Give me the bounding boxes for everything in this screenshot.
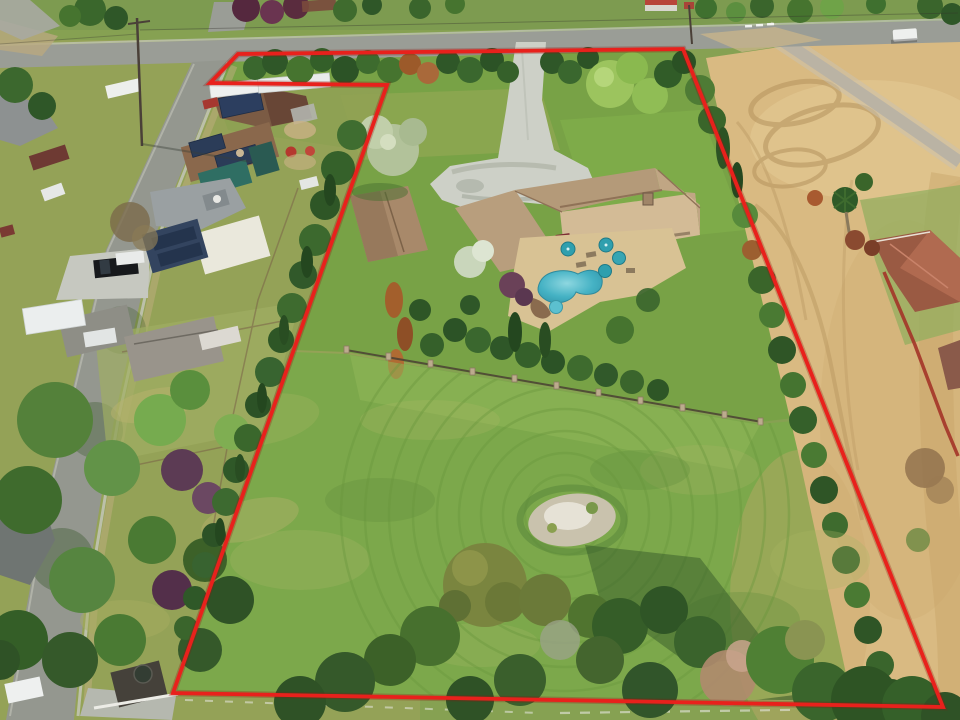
red-bush — [845, 230, 865, 250]
chimney — [643, 193, 653, 205]
roof-cupola — [213, 195, 221, 203]
cypress — [235, 454, 245, 482]
cypress — [301, 246, 313, 278]
spa — [550, 301, 563, 314]
rust-conifer — [397, 317, 413, 351]
rust-tree — [417, 62, 439, 84]
red-patio-umbrella — [305, 146, 315, 156]
rust-bush — [807, 190, 823, 206]
cypress — [539, 322, 551, 358]
teal-umbrella — [599, 265, 612, 278]
trampoline — [134, 665, 152, 683]
teal-umbrella — [613, 252, 626, 265]
cypress — [508, 312, 522, 352]
red-bush — [864, 240, 880, 256]
cypress — [257, 383, 267, 413]
maroon-trees — [260, 0, 284, 24]
gray-green-tree — [540, 620, 580, 660]
cypress — [279, 315, 289, 345]
purple-plum-tree — [161, 449, 203, 491]
cypress — [324, 174, 336, 206]
aerial-photo — [0, 0, 960, 720]
rust-conifer — [385, 282, 403, 318]
